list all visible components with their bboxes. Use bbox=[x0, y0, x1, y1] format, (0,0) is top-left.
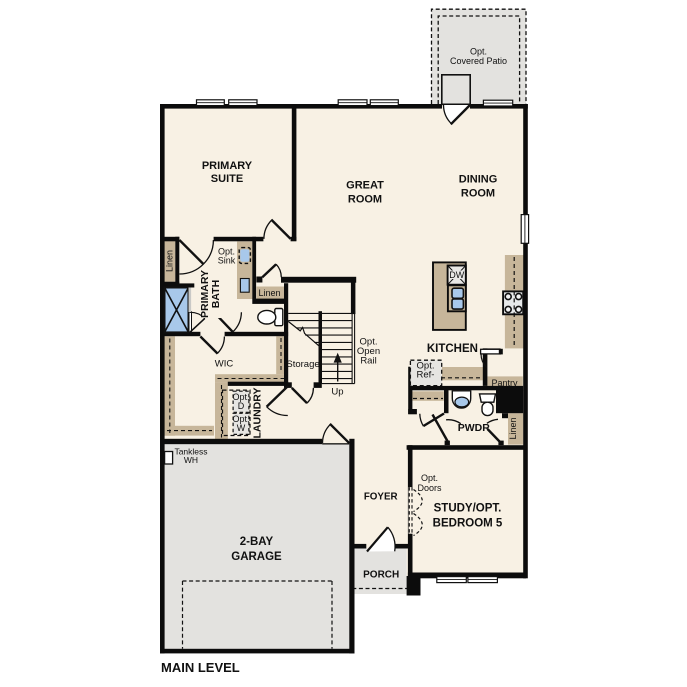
svg-text:W: W bbox=[237, 423, 246, 433]
svg-text:BEDROOM 5: BEDROOM 5 bbox=[433, 518, 503, 530]
svg-text:Linen: Linen bbox=[165, 250, 175, 272]
svg-text:FOYER: FOYER bbox=[364, 491, 398, 502]
svg-text:Pantry: Pantry bbox=[491, 378, 518, 388]
svg-text:PRIMARY: PRIMARY bbox=[202, 160, 253, 172]
svg-text:Storage: Storage bbox=[286, 359, 319, 370]
svg-text:Opt.: Opt. bbox=[421, 473, 438, 483]
svg-text:Linen: Linen bbox=[258, 288, 280, 298]
svg-text:KITCHEN: KITCHEN bbox=[427, 343, 478, 355]
svg-text:BATH: BATH bbox=[210, 280, 222, 308]
svg-text:Covered Patio: Covered Patio bbox=[450, 56, 507, 66]
svg-text:Rail: Rail bbox=[360, 355, 376, 366]
svg-text:2-BAY: 2-BAY bbox=[240, 536, 274, 548]
svg-text:Doors: Doors bbox=[417, 483, 442, 493]
svg-text:DW: DW bbox=[449, 270, 464, 280]
svg-text:MAIN LEVEL: MAIN LEVEL bbox=[161, 660, 240, 675]
svg-text:STUDY/OPT.: STUDY/OPT. bbox=[434, 503, 502, 515]
svg-text:D: D bbox=[238, 401, 245, 411]
svg-text:PWDR: PWDR bbox=[458, 422, 490, 434]
svg-text:SUITE: SUITE bbox=[211, 173, 243, 185]
svg-text:LAUNDRY: LAUNDRY bbox=[252, 388, 264, 439]
svg-text:ROOM: ROOM bbox=[461, 188, 495, 200]
svg-text:GARAGE: GARAGE bbox=[231, 551, 282, 563]
svg-text:Opt.: Opt. bbox=[470, 47, 487, 57]
svg-text:GREAT: GREAT bbox=[346, 180, 384, 192]
svg-text:WIC: WIC bbox=[215, 358, 234, 369]
svg-text:PORCH: PORCH bbox=[363, 570, 399, 581]
svg-text:Ref-: Ref- bbox=[417, 370, 435, 381]
svg-text:DINING: DINING bbox=[459, 174, 498, 186]
svg-text:Sink: Sink bbox=[218, 256, 236, 266]
svg-text:WH: WH bbox=[184, 455, 198, 465]
svg-text:ROOM: ROOM bbox=[348, 194, 382, 206]
svg-text:Linen: Linen bbox=[508, 417, 518, 439]
svg-text:Up: Up bbox=[331, 387, 343, 398]
